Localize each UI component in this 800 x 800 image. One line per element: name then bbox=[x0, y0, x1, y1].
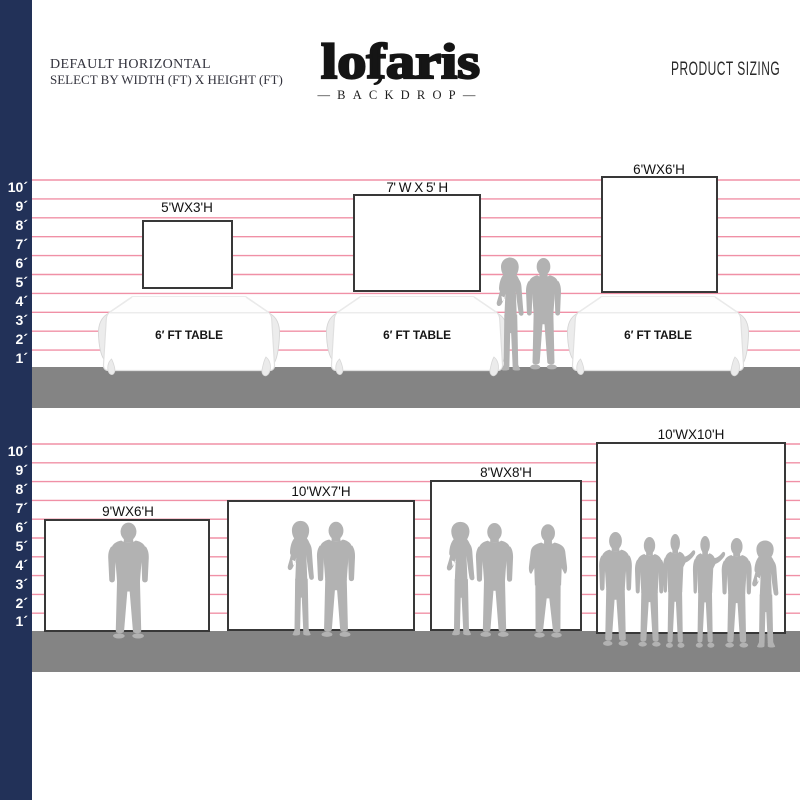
svg-text:5'WX3'H: 5'WX3'H bbox=[161, 200, 213, 215]
svg-text:8´: 8´ bbox=[16, 217, 29, 233]
svg-text:8´: 8´ bbox=[16, 481, 29, 497]
svg-text:PRODUCT SIZING: PRODUCT SIZING bbox=[671, 58, 780, 80]
svg-text:SELECT BY WIDTH (FT) X HEIGHT: SELECT BY WIDTH (FT) X HEIGHT (FT) bbox=[50, 72, 283, 87]
svg-text:7´: 7´ bbox=[16, 500, 29, 516]
svg-text:5´: 5´ bbox=[16, 274, 29, 290]
svg-text:6′ FT TABLE: 6′ FT TABLE bbox=[155, 328, 223, 342]
svg-text:6'WX6'H: 6'WX6'H bbox=[633, 162, 685, 177]
svg-text:3´: 3´ bbox=[16, 576, 29, 592]
svg-text:—BACKDROP—: —BACKDROP— bbox=[316, 88, 482, 102]
svg-text:1´: 1´ bbox=[16, 350, 29, 366]
svg-text:9'WX6'H: 9'WX6'H bbox=[102, 504, 154, 519]
svg-text:2´: 2´ bbox=[16, 595, 29, 611]
svg-text:3´: 3´ bbox=[16, 312, 29, 328]
svg-text:7´: 7´ bbox=[16, 236, 29, 252]
svg-text:6´: 6´ bbox=[16, 519, 29, 535]
svg-text:7' W X 5' H: 7' W X 5' H bbox=[386, 180, 447, 195]
svg-text:lofaris: lofaris bbox=[321, 33, 480, 89]
svg-text:4´: 4´ bbox=[16, 557, 29, 573]
svg-text:10'WX10'H: 10'WX10'H bbox=[658, 427, 725, 442]
svg-text:2´: 2´ bbox=[16, 331, 29, 347]
svg-text:6′ FT TABLE: 6′ FT TABLE bbox=[624, 328, 692, 342]
svg-text:6´: 6´ bbox=[16, 255, 29, 271]
svg-text:5´: 5´ bbox=[16, 538, 29, 554]
svg-text:DEFAULT HORIZONTAL: DEFAULT HORIZONTAL bbox=[50, 57, 211, 72]
svg-text:4´: 4´ bbox=[16, 293, 29, 309]
svg-text:9´: 9´ bbox=[16, 462, 29, 478]
svg-text:1´: 1´ bbox=[16, 613, 29, 629]
svg-text:8'WX8'H: 8'WX8'H bbox=[480, 465, 532, 480]
svg-text:6′ FT TABLE: 6′ FT TABLE bbox=[383, 328, 451, 342]
svg-text:9´: 9´ bbox=[16, 198, 29, 214]
svg-text:10´: 10´ bbox=[8, 179, 29, 195]
svg-text:10´: 10´ bbox=[8, 443, 29, 459]
svg-text:10'WX7'H: 10'WX7'H bbox=[291, 484, 350, 499]
